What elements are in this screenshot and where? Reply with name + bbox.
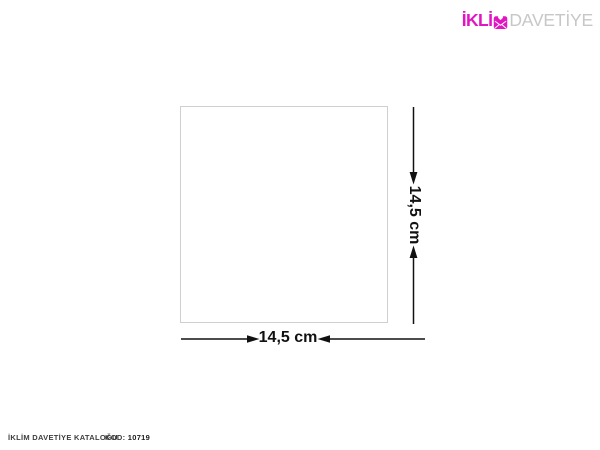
brand-logo: İKLİ DAVETİYE [462,12,593,30]
height-dim-arrow-down [410,172,418,185]
width-dimension-label: 14,5 cm [259,329,318,347]
height-dim-arrow-up [410,246,418,259]
brand-name-suffix: DAVETİYE [509,12,593,30]
brand-name-prefix: İKLİ [462,12,493,30]
catalog-title: İKLİM DAVETİYE KATALOĞU [8,433,118,442]
footer: İKLİM DAVETİYE KATALOĞU KOD: 10719 [8,433,308,445]
width-dim-arrow-left [318,335,331,343]
product-code: KOD: 10719 [105,433,150,442]
product-outline [180,106,388,323]
envelope-heart-icon [493,13,508,30]
catalog-page: İKLİ DAVETİYE 14,5 cm 14,5 cm İKLİM DAVE… [0,0,600,450]
code-value: 10719 [128,433,150,442]
height-dimension-label: 14,5 cm [405,186,423,245]
code-label: KOD: [105,433,125,442]
width-dim-arrow-right [247,335,260,343]
